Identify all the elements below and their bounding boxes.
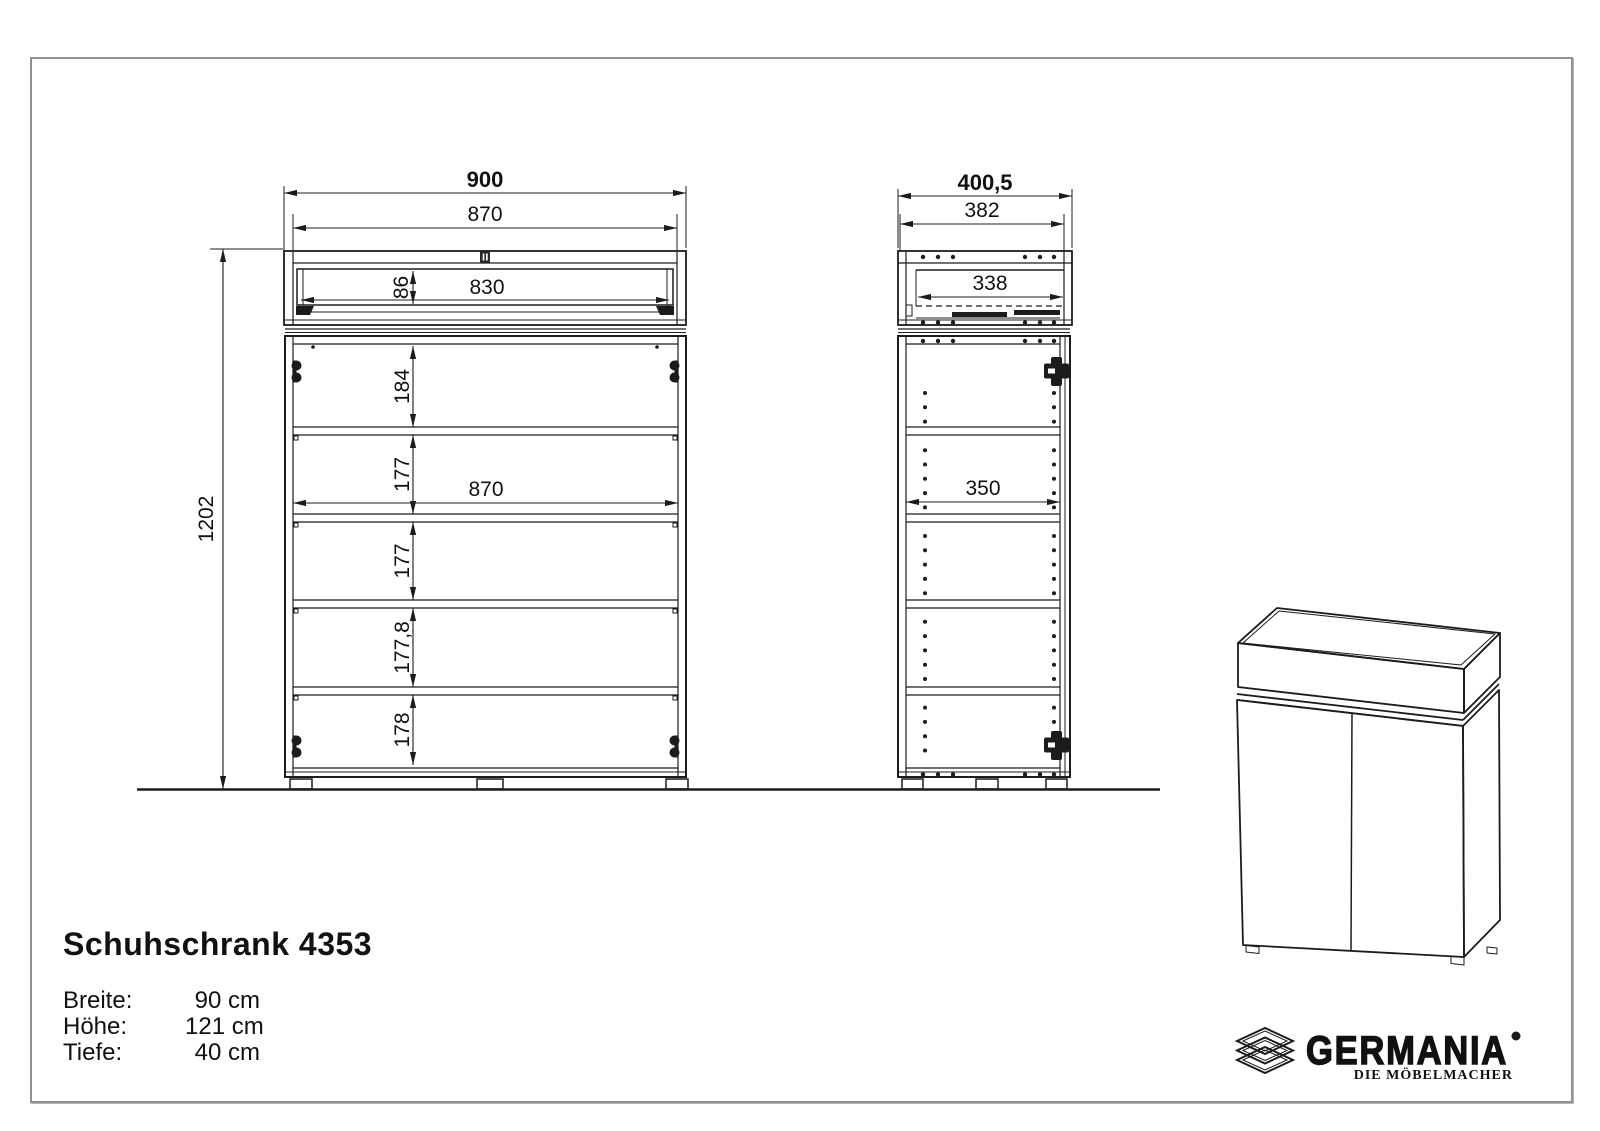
dim-carcass-depth: 382	[964, 199, 999, 222]
front-extension-lines	[210, 186, 686, 250]
shelf-pin-holes	[923, 391, 1056, 753]
front-hinge-icons	[292, 361, 680, 758]
brand-tagline: DIE MÖBELMACHER	[1354, 1068, 1513, 1084]
spec-row-tiefe: Tiefe: 40 cm	[63, 1040, 260, 1066]
spec-row-breite: Breite: 90 cm	[63, 988, 260, 1014]
title-block: Schuhschrank 4353	[63, 926, 372, 963]
spec-value: 40 cm	[185, 1040, 260, 1066]
dim-drawer-height: 86	[390, 276, 413, 299]
dim-comp-5: 178	[391, 712, 414, 747]
front-compartment-dims: 184 177 177 177,8 178	[391, 346, 414, 765]
side-shelves	[906, 427, 1060, 695]
screw-dots	[921, 255, 1056, 777]
spec-value: 90 cm	[185, 988, 260, 1014]
front-body	[285, 336, 688, 789]
dim-drawer-depth: 338	[972, 272, 1007, 295]
spec-table: Breite: 90 cm Höhe: 121 cm Tiefe: 40 cm	[63, 988, 260, 1066]
dim-comp-1: 184	[391, 369, 414, 404]
spec-value: 121 cm	[185, 1014, 260, 1040]
side-feet	[902, 779, 1067, 789]
front-view: 900 870	[195, 167, 688, 789]
push-latch-icon	[480, 252, 490, 263]
dim-inner-width: 870	[468, 478, 503, 501]
spec-label: Tiefe:	[63, 1040, 185, 1066]
product-title: Schuhschrank 4353	[63, 926, 372, 963]
dim-carcass-width: 870	[467, 203, 502, 226]
side-view: 400,5 382 338	[898, 170, 1072, 789]
dim-overall-depth: 400,5	[957, 170, 1012, 195]
dim-comp-4: 177,8	[391, 621, 414, 674]
perspective-feet	[1246, 946, 1497, 966]
front-shelves	[293, 427, 678, 695]
spec-label: Höhe:	[63, 1014, 185, 1040]
technical-drawing-page: 900 870	[0, 0, 1600, 1131]
dim-drawer-width: 830	[469, 276, 504, 299]
dim-overall-width: 900	[467, 167, 504, 192]
shelf-pins	[294, 436, 677, 700]
spec-row-hoehe: Höhe: 121 cm	[63, 1014, 260, 1040]
spec-label: Breite:	[63, 988, 185, 1014]
front-feet	[290, 779, 688, 789]
perspective-view	[1237, 608, 1500, 965]
dim-shelf-depth: 350	[965, 477, 1000, 500]
dim-comp-3: 177	[391, 543, 414, 578]
brand-block: DIE MÖBELMACHER	[1230, 1020, 1560, 1090]
dim-comp-2: 177	[391, 457, 414, 492]
dim-overall-height: 1202	[195, 496, 218, 543]
